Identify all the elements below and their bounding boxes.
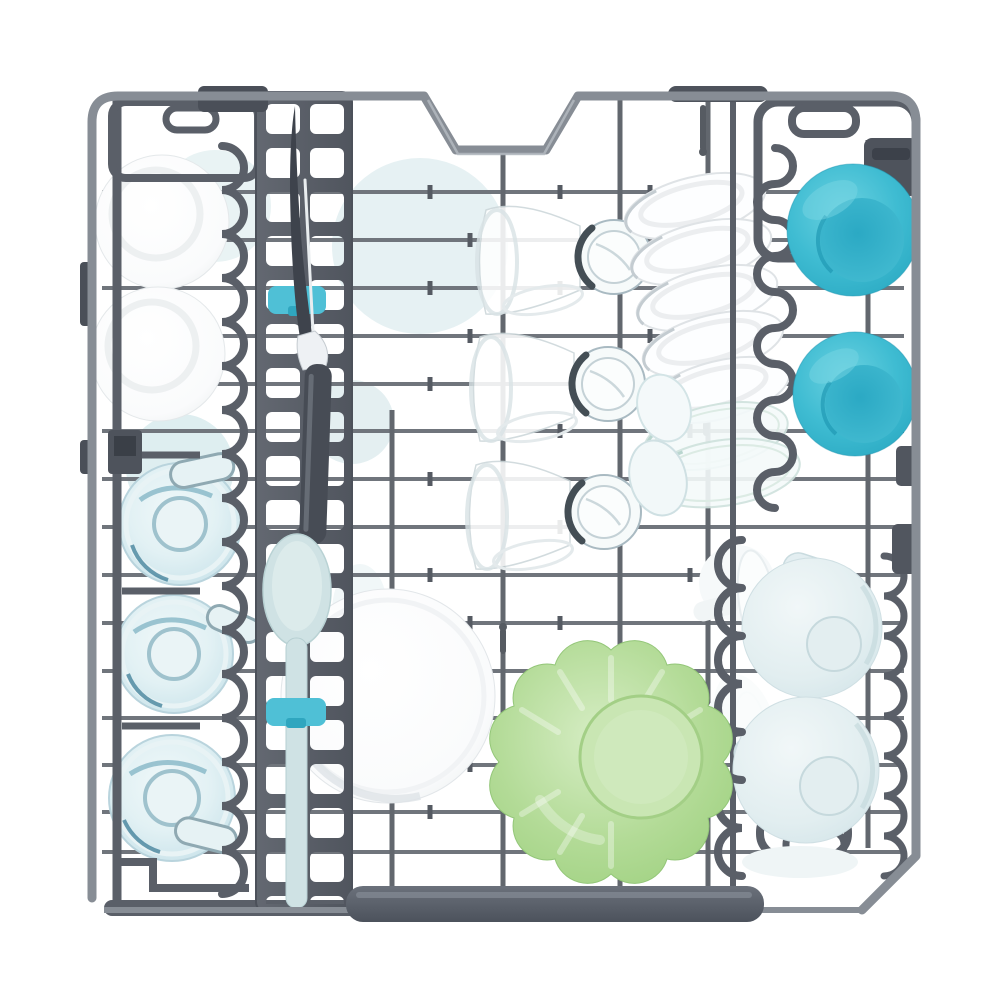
spoon-handle <box>286 638 307 908</box>
teal-bowl-1 <box>787 164 919 296</box>
green-fluted-bowl <box>490 641 733 884</box>
rack-illustration <box>0 0 1000 1000</box>
teal-bowl-2 <box>793 332 917 456</box>
white-bowl-2 <box>91 287 225 421</box>
dishwasher-rack-photo <box>0 0 1000 1000</box>
